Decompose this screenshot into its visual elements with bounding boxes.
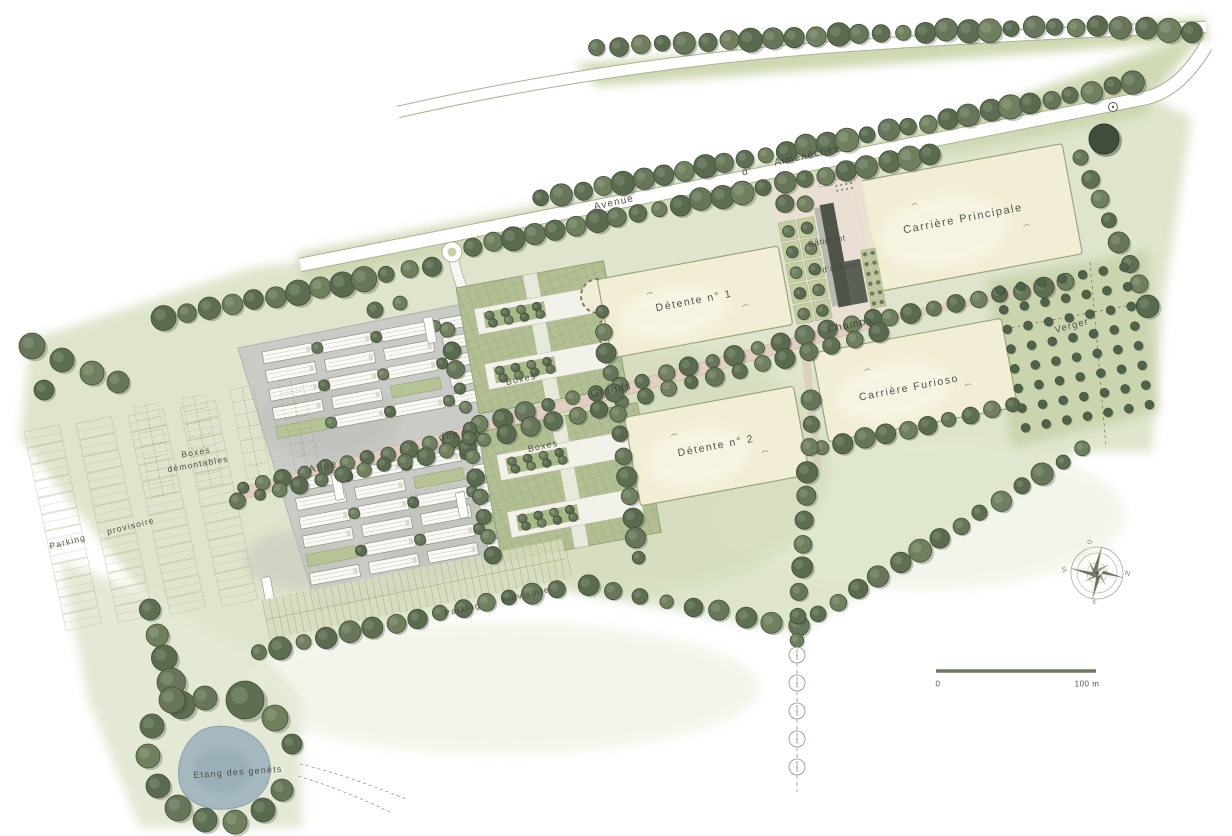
landmark-symbol — [1109, 103, 1118, 112]
site-plan-drawing — [0, 0, 1232, 836]
site-plan-page: Avenue d' Almenêches Allée des Grands Ch… — [0, 0, 1232, 836]
future-trees — [789, 642, 805, 792]
